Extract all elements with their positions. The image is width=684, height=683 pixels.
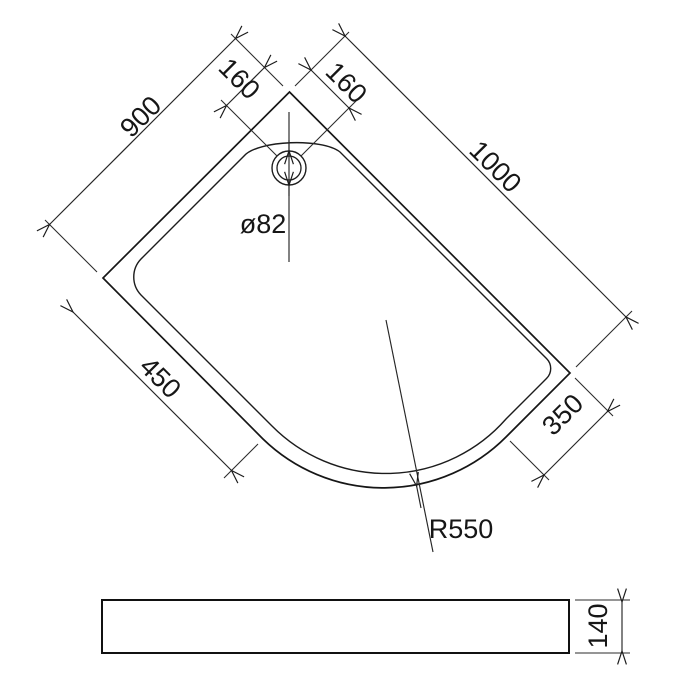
dim-label-1000: 1000: [463, 135, 527, 199]
dim-label-160-left: 160: [213, 52, 266, 105]
tray-inner-outline: [134, 143, 551, 474]
dim-label-drain-diameter: ø82: [240, 209, 287, 239]
extension-line: [576, 311, 632, 367]
dim-label-140: 140: [583, 603, 613, 648]
extension-line: [45, 220, 97, 272]
extension-line: [221, 100, 277, 156]
side-view-outline: [102, 600, 569, 653]
dim-label-900: 900: [114, 90, 167, 143]
extension-line: [224, 444, 258, 478]
technical-drawing-page: 900 1000 160 160 450 350 ø82 R550 140: [0, 0, 684, 683]
side-view: [102, 600, 569, 653]
dim-label-160-right: 160: [320, 56, 373, 109]
leader-line-r550: [386, 320, 433, 552]
dim-label-350: 350: [536, 388, 589, 441]
dim-label-radius: R550: [429, 514, 494, 544]
shower-tray-drawing: 900 1000 160 160 450 350 ø82 R550 140: [0, 0, 684, 683]
dim-label-450: 450: [134, 351, 187, 404]
extension-line: [510, 441, 549, 480]
extension-line: [301, 100, 357, 156]
dim-line-450: [73, 312, 232, 471]
